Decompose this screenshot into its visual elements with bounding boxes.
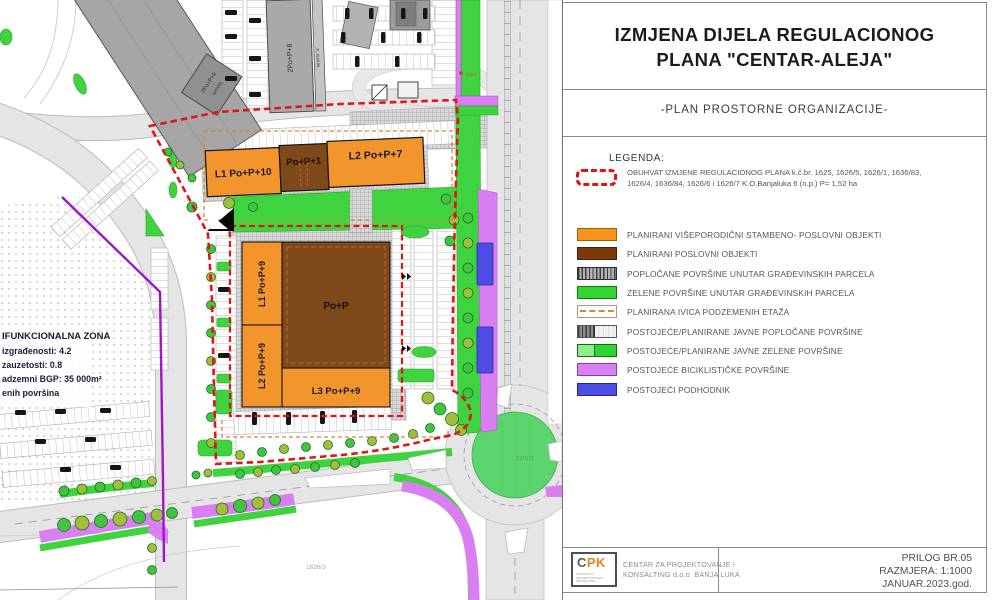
dimension-annotation: 136.5 — [466, 72, 477, 77]
logo-subtext: CENTAR ZA PROJEKTOVANJE I KONSALTING — [576, 573, 613, 584]
legend-boundary-symbol — [576, 169, 617, 186]
legend-label: POSTOJEĆE/PLANIRANE JAVNE POPLOČANE POVR… — [627, 327, 863, 337]
legend-item: POSTOJEĆE/PLANIRANE JAVNE POPLOČANE POVR… — [563, 325, 986, 339]
legend-label: POSTOJEĆE/PLANIRANE JAVNE ZELENE POVRŠIN… — [627, 346, 843, 356]
legend-label: PLANIRANA IVICA PODZEMENIH ETAŽA — [627, 307, 789, 317]
legend-swatch-hatch — [577, 267, 617, 280]
legend-swatch-blue — [577, 383, 617, 396]
survey-point — [459, 71, 463, 75]
zone-text-line: IFUNKCIONALNA ZONA — [2, 331, 110, 342]
zone-text-line: izgrađenosti: 4.2 — [2, 346, 72, 356]
plan-sheet: 2Po+P+8 lamela "a" 2Po+P+9 lamela L1 Po+… — [0, 0, 1000, 600]
legend-label: PLANIRANI VIŠEPORODIČNI STAMBENO- POSLOV… — [627, 230, 881, 240]
structure-symbol — [398, 82, 418, 98]
site-plan-svg: 2Po+P+8 lamela "a" 2Po+P+9 lamela L1 Po+… — [0, 0, 562, 600]
logo-letters-pk: PK — [587, 555, 606, 570]
zone-text-line: zauzetosti: 0.8 — [2, 360, 62, 370]
legend-item: POSTOJEĆI PODHODNIK — [563, 383, 986, 397]
divider — [563, 136, 986, 137]
traffic-island — [505, 528, 528, 554]
traffic-island — [548, 441, 562, 462]
cpk-logo: CPK CENTAR ZA PROJEKTOVANJE I KONSALTING — [571, 552, 617, 587]
legend-swatch-brown — [577, 247, 617, 260]
legend-swatch-violet — [577, 363, 617, 376]
building-label: L2 Po+P+9 — [257, 343, 267, 389]
building-label: Po+P+1 — [286, 156, 322, 169]
building-label: L1 Po+P+9 — [257, 261, 267, 307]
sheet-info: PRILOG BR.05 RAZMJERA: 1:1000 JANUAR.202… — [718, 547, 986, 592]
legend-label: POPLOČANE POVRŠINE UNUTAR GRAĐEVINSKIH P… — [627, 269, 875, 279]
legend-label: POSTOJEĆE BICIKLISTIČKE POVRŠINE — [627, 365, 789, 375]
legend-swatch-green — [577, 286, 617, 299]
legend-swatch-half-green — [577, 344, 617, 357]
building-label: L2 Po+P+7 — [349, 148, 403, 162]
site-plan-map: 2Po+P+8 lamela "a" 2Po+P+9 lamela L1 Po+… — [0, 0, 562, 600]
legend-item: POSTOJEĆE BICIKLISTIČKE POVRŠINE — [563, 363, 986, 377]
legend-item: POPLOČANE POVRŠINE UNUTAR GRAĐEVINSKIH P… — [563, 267, 986, 281]
legend-item: PLANIRANI POSLOVNI OBJEKTI — [563, 247, 986, 261]
logo-letter-c: C — [577, 555, 587, 570]
building-label: L3 Po+P+9 — [312, 386, 361, 397]
existing-building-label: 2Po+P+8 — [287, 43, 295, 73]
zone-text-line: enih površina — [2, 388, 59, 398]
legend-label: ZELENE POVRŠINE UNUTAR GRAĐEVINSKIH PARC… — [627, 288, 855, 298]
drawing-subtitle: -PLAN PROSTORNE ORGANIZACIJE- — [563, 104, 986, 116]
parcel-label: 1626/3 — [306, 564, 326, 571]
legend-label: POSTOJEĆI PODHODNIK — [627, 385, 730, 395]
building-top-l2 — [327, 137, 425, 187]
legend-label: PLANIRANI POSLOVNI OBJEKTI — [627, 249, 758, 259]
legend-item: PLANIRANI VIŠEPORODIČNI STAMBENO- POSLOV… — [563, 228, 986, 242]
panel-sheet: IZMJENA DIJELA REGULACIONOG PLANA "CENTA… — [563, 2, 987, 593]
title-line-2: PLANA "CENTAR-ALEJA" — [563, 47, 986, 72]
sheet-scale: RAZMJERA: 1:1000 — [719, 565, 972, 578]
legend-boundary-line2: 1626/4, 1636/84, 1626/6 i 1626/7 K.O.Ban… — [627, 179, 977, 190]
title-block-panel: IZMJENA DIJELA REGULACIONOG PLANA "CENTA… — [562, 0, 1000, 600]
legend-heading: LEGENDA: — [609, 153, 664, 164]
title-line-1: IZMJENA DIJELA REGULACIONOG — [563, 22, 986, 47]
sheet-date: JANUAR.2023.god. — [719, 578, 972, 591]
legend-boundary-line1: OBUHVAT IZMJENE REGULACIONOG PLANA k.č.b… — [627, 168, 977, 179]
legend-item: ZELENE POVRŠINE UNUTAR GRAĐEVINSKIH PARC… — [563, 286, 986, 300]
existing-building-label: lamela "a" — [315, 46, 321, 67]
divider — [563, 89, 986, 90]
legend-swatch-orange — [577, 228, 617, 241]
drawing-title: IZMJENA DIJELA REGULACIONOG PLANA "CENTA… — [563, 3, 986, 89]
legend-item: POSTOJEĆE/PLANIRANE JAVNE ZELENE POVRŠIN… — [563, 344, 986, 358]
parcel-label: 2201/1 — [516, 456, 535, 462]
legend-boundary-text: OBUHVAT IZMJENE REGULACIONOG PLANA k.č.b… — [627, 168, 977, 189]
sheet-number: PRILOG BR.05 — [719, 552, 972, 565]
legend-swatch-dashed — [577, 305, 617, 318]
zone-text-line: adzemni BGP: 35 000m² — [2, 374, 102, 384]
legend-item: PLANIRANA IVICA PODZEMENIH ETAŽA — [563, 305, 986, 319]
legend-swatch-half-hatch — [577, 325, 617, 338]
building-label: Po+P — [323, 301, 349, 312]
